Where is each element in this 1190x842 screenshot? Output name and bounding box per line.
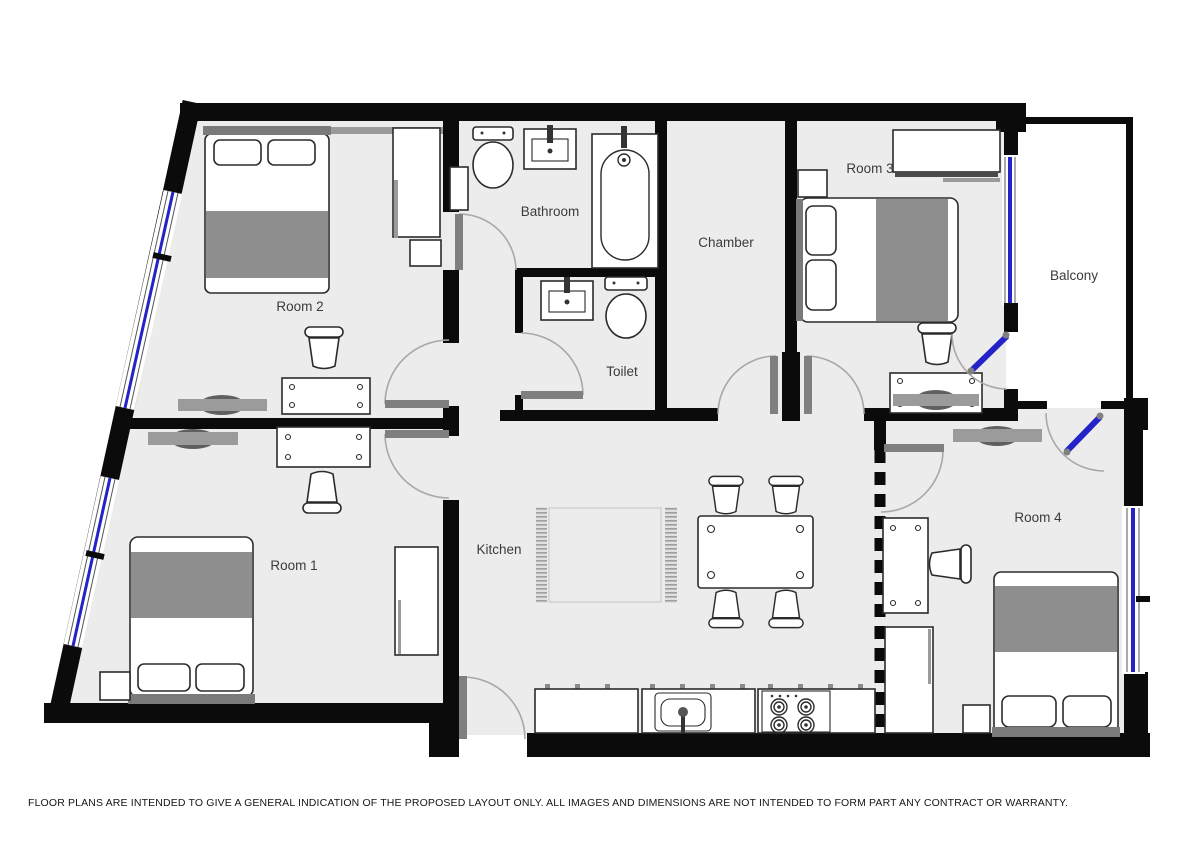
pillow	[806, 206, 836, 255]
pillow	[1002, 696, 1056, 727]
cabinet	[410, 240, 441, 266]
room4-label: Room 4	[1014, 510, 1062, 525]
nightstand	[963, 705, 990, 733]
headboard	[796, 199, 803, 321]
right-wall-lower	[1124, 672, 1148, 757]
bathtub	[592, 126, 658, 268]
toilet-fixture	[473, 127, 513, 188]
wardrobe	[393, 128, 440, 237]
pillow	[806, 260, 836, 310]
wardrobe	[395, 547, 438, 655]
pillow	[196, 664, 244, 691]
desk	[883, 518, 928, 613]
desk	[890, 373, 982, 413]
wardrobe	[893, 130, 1000, 172]
blanket	[995, 586, 1117, 652]
wardrobe-track	[943, 178, 1000, 182]
burner	[798, 699, 814, 715]
sink-counter	[642, 689, 755, 733]
toilet-label: Toilet	[606, 364, 638, 379]
bathroom-bottom-wall	[515, 268, 658, 277]
bathroom-label: Bathroom	[521, 204, 580, 219]
wardrobe-rail	[928, 629, 931, 684]
right-wall-upper	[1124, 430, 1143, 508]
desk	[282, 378, 370, 414]
nightstand	[100, 672, 130, 700]
nightstand	[798, 170, 827, 197]
headboard	[203, 126, 331, 135]
disclaimer-text: FLOOR PLANS ARE INTENDED TO GIVE A GENER…	[28, 797, 1178, 809]
double-bed	[203, 126, 331, 293]
headboard	[992, 727, 1120, 737]
kitchen-label: Kitchen	[476, 542, 521, 557]
bottom-wall-entry-left	[429, 733, 459, 757]
pillow	[268, 140, 315, 165]
toilet-bottom-wall	[500, 410, 658, 421]
blanket	[206, 211, 328, 278]
wardrobe-rail	[394, 180, 398, 238]
rug-fringe-right	[665, 507, 677, 603]
floor-plan-drawing: Room 2 Room 1 Room 3 Room 4 Bathroom Toi…	[0, 0, 1190, 842]
room2-label: Room 2	[276, 299, 323, 314]
burner	[771, 699, 787, 715]
window-mullion-tick	[86, 553, 104, 557]
wardrobe-track	[895, 172, 998, 177]
chamber-label: Chamber	[698, 235, 754, 250]
balcony-floor	[1018, 120, 1131, 405]
pillow	[1063, 696, 1111, 727]
window-mullion-tick	[153, 255, 171, 259]
radiator	[450, 167, 468, 210]
sink	[541, 277, 593, 320]
balcony-label: Balcony	[1050, 268, 1098, 283]
blanket	[876, 199, 948, 321]
headboard	[128, 694, 255, 704]
burner	[798, 717, 814, 733]
window-mullion-tick	[1136, 596, 1150, 602]
blanket	[131, 552, 252, 618]
double-bed	[796, 198, 958, 322]
top-wall	[180, 103, 1012, 121]
burner	[771, 717, 787, 733]
room4-window	[1122, 506, 1150, 674]
kitchen-counter	[535, 689, 638, 733]
chamber-right-wall	[785, 121, 797, 356]
wardrobe-rail	[398, 600, 401, 654]
dining-table	[698, 516, 813, 588]
floor-plan-page: Room 2 Room 1 Room 3 Room 4 Bathroom Toi…	[0, 0, 1190, 842]
wardrobe	[885, 627, 933, 733]
stove-counter	[758, 689, 875, 733]
pillow	[214, 140, 261, 165]
double-bed	[128, 537, 255, 704]
double-bed	[992, 572, 1120, 737]
toilet-fixture	[605, 277, 647, 338]
desk	[277, 427, 370, 467]
rug-fringe-left	[536, 507, 547, 603]
room3-label: Room 3	[846, 161, 893, 176]
room3-window	[1008, 157, 1012, 303]
sink	[524, 125, 576, 169]
bottom-wall-left	[44, 703, 447, 723]
room1-label: Room 1	[270, 558, 317, 573]
pillow	[138, 664, 190, 691]
